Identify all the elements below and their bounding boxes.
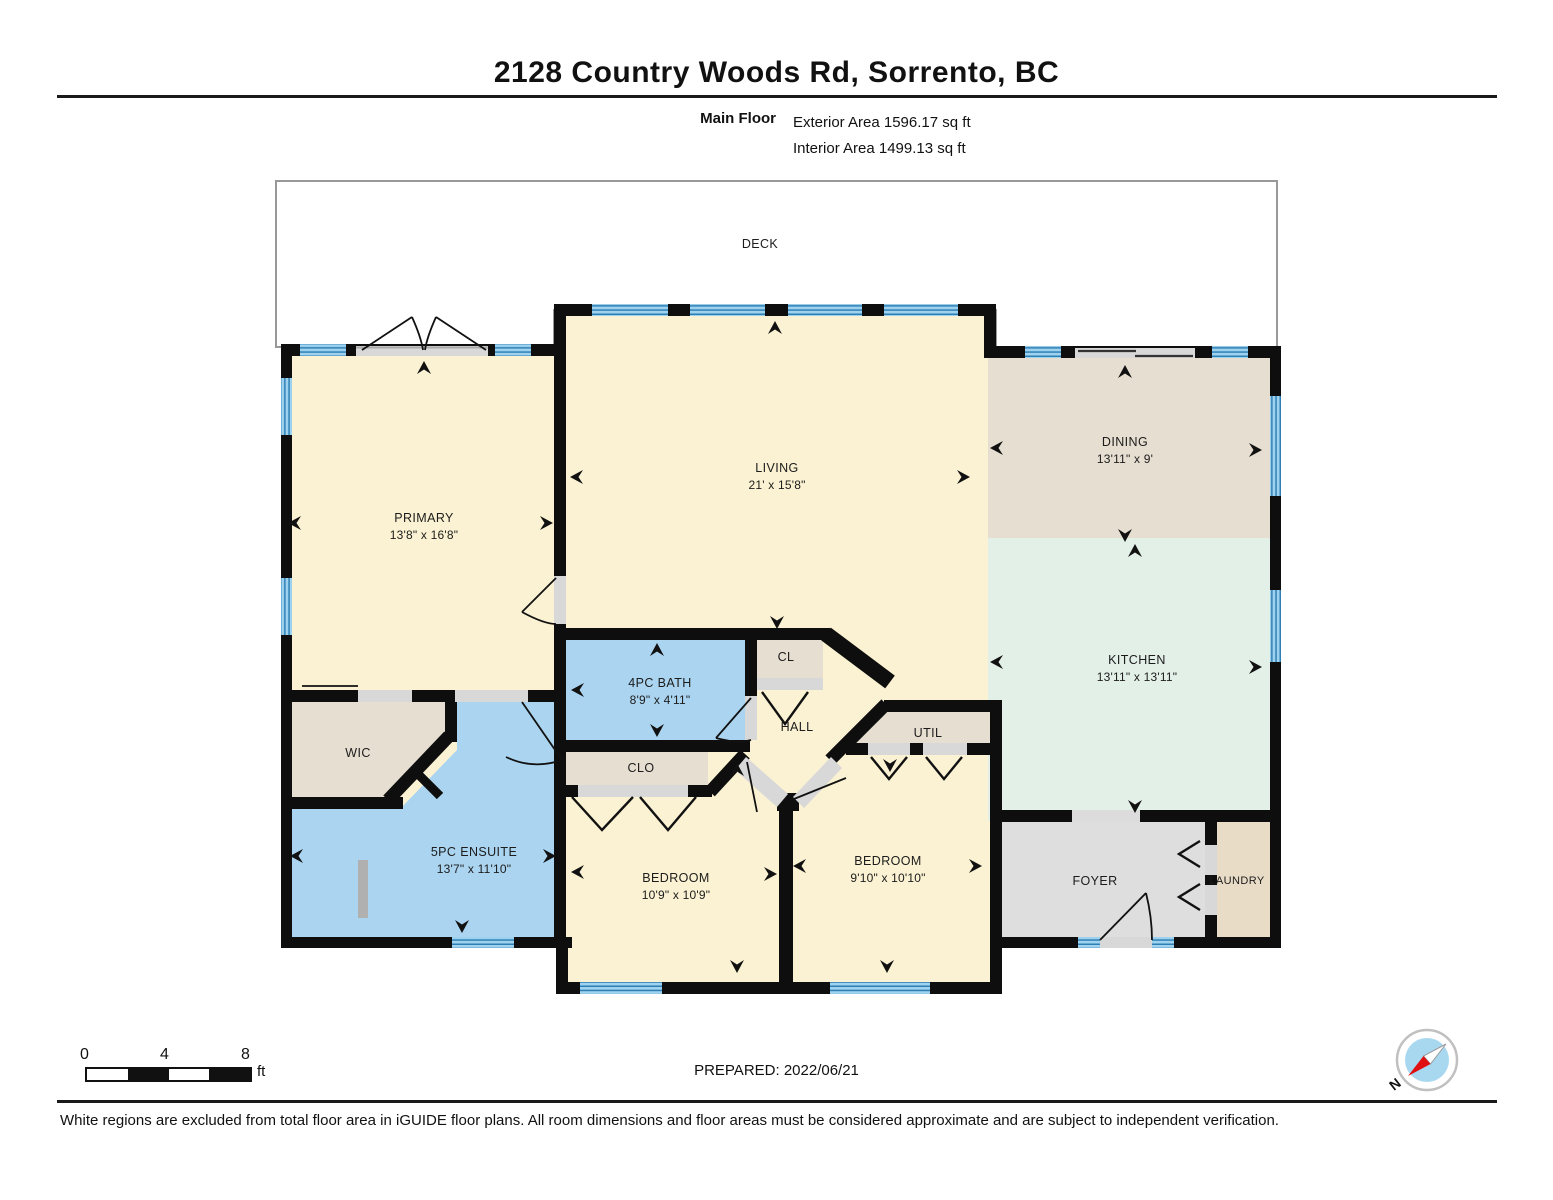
disclaimer-text: White regions are excluded from total fl… bbox=[60, 1112, 1500, 1129]
wic-label: WIC bbox=[345, 746, 371, 760]
prepared-date: PREPARED: 2022/06/21 bbox=[0, 1062, 1553, 1079]
primary-dims: 13'8" x 16'8" bbox=[390, 528, 458, 542]
bath-dims: 8'9" x 4'11" bbox=[630, 693, 691, 707]
room-bath bbox=[566, 640, 746, 740]
cl-label: CL bbox=[778, 650, 795, 664]
footer-divider bbox=[57, 1100, 1497, 1103]
foyer-label: FOYER bbox=[1072, 874, 1117, 888]
floor-plan-svg: DECK PRIMARY 13'8" x 16'8" LIVING 21' x … bbox=[0, 0, 1553, 1200]
laundry-label: LAUNDRY bbox=[1209, 875, 1264, 887]
bedroom-right-label: BEDROOM bbox=[854, 854, 921, 868]
dining-dims: 13'11" x 9' bbox=[1097, 452, 1153, 466]
living-dims: 21' x 15'8" bbox=[748, 478, 805, 492]
bedroom-left-dims: 10'9" x 10'9" bbox=[642, 888, 710, 902]
dining-label: DINING bbox=[1102, 435, 1148, 449]
clo-label: CLO bbox=[628, 761, 655, 775]
ensuite-dims: 13'7" x 11'10" bbox=[437, 862, 511, 876]
floor-plan-page: 2128 Country Woods Rd, Sorrento, BC Main… bbox=[0, 0, 1553, 1200]
kitchen-label: KITCHEN bbox=[1108, 653, 1166, 667]
util-label: UTIL bbox=[914, 726, 943, 740]
deck-label: DECK bbox=[742, 237, 779, 251]
primary-label: PRIMARY bbox=[394, 511, 454, 525]
bedroom-left-label: BEDROOM bbox=[642, 871, 709, 885]
bedroom-right-dims: 9'10" x 10'10" bbox=[850, 871, 925, 885]
ensuite-label: 5PC ENSUITE bbox=[431, 845, 517, 859]
living-label: LIVING bbox=[755, 461, 798, 475]
bath-label: 4PC BATH bbox=[628, 676, 691, 690]
shower-divider bbox=[358, 860, 368, 918]
kitchen-dims: 13'11" x 13'11" bbox=[1097, 670, 1177, 684]
hall-label: HALL bbox=[781, 720, 814, 734]
